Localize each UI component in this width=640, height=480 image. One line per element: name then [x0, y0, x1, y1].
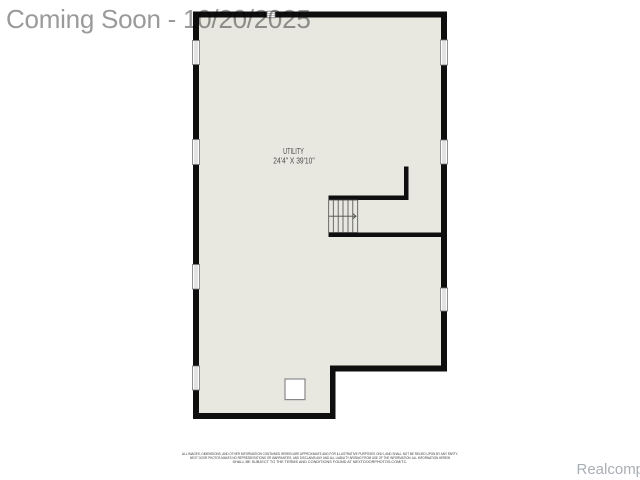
svg-text:24'4" X 39'10": 24'4" X 39'10" — [273, 157, 315, 166]
svg-text:SHALL BE SUBJECT TO THE TERMS: SHALL BE SUBJECT TO THE TERMS AND CONDIT… — [233, 460, 408, 464]
svg-text:UTILITY: UTILITY — [283, 146, 304, 156]
